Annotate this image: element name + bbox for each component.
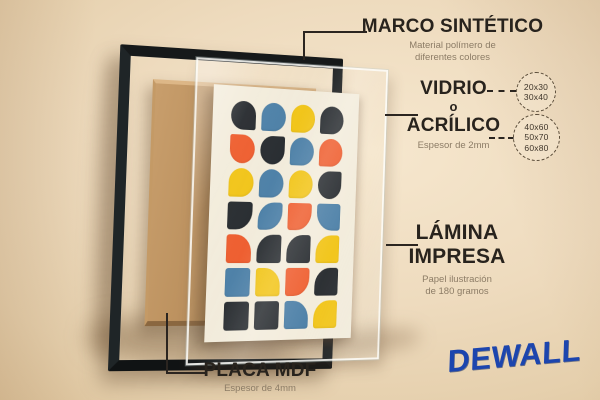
- print-subtitle-line1: Papel ilustración: [392, 274, 522, 286]
- frame-subtitle-line2: diferentes colores: [355, 52, 550, 64]
- size-option: 50x70: [524, 132, 548, 142]
- print-title-line2: IMPRESA: [392, 245, 522, 269]
- annotation-glazing: VIDRIO o ACRÍLICO Espesor de 2mm: [396, 78, 511, 152]
- annotation-backing: PLACA MDF Espesor de 4mm: [200, 361, 320, 395]
- size-option: 30x40: [524, 92, 548, 102]
- size-bubble-small: 20x30 30x40: [516, 72, 556, 112]
- print-subtitle-line2: de 180 gramos: [392, 286, 522, 298]
- brand-logo: DEWALL: [447, 330, 600, 380]
- glazing-title-line1: VIDRIO: [396, 78, 511, 99]
- frame-subtitle-line1: Material polímero de: [355, 40, 550, 52]
- frame-title: MARCO SINTÉTICO: [355, 17, 550, 37]
- size-option: 60x80: [524, 143, 548, 153]
- glass-pane-layer: [186, 57, 388, 365]
- infographic-canvas: MARCO SINTÉTICO Material polímero de dif…: [0, 0, 600, 400]
- glazing-title-line2: o: [396, 99, 511, 115]
- size-bubble-large: 40x60 50x70 60x80: [513, 114, 560, 161]
- leader-line-backing-vertical: [166, 313, 168, 374]
- glazing-title-line3: ACRÍLICO: [396, 115, 511, 136]
- backing-title: PLACA MDF: [200, 361, 320, 381]
- backing-subtitle: Espesor de 4mm: [200, 383, 320, 395]
- annotation-print: LÁMINA IMPRESA Papel ilustración de 180 …: [392, 221, 522, 299]
- print-title-line1: LÁMINA: [392, 221, 522, 245]
- size-option: 20x30: [524, 82, 548, 92]
- glazing-subtitle: Espesor de 2mm: [396, 140, 511, 152]
- leader-line-frame-vertical: [303, 31, 305, 60]
- annotation-frame: MARCO SINTÉTICO Material polímero de dif…: [355, 17, 550, 65]
- size-option: 40x60: [524, 122, 548, 132]
